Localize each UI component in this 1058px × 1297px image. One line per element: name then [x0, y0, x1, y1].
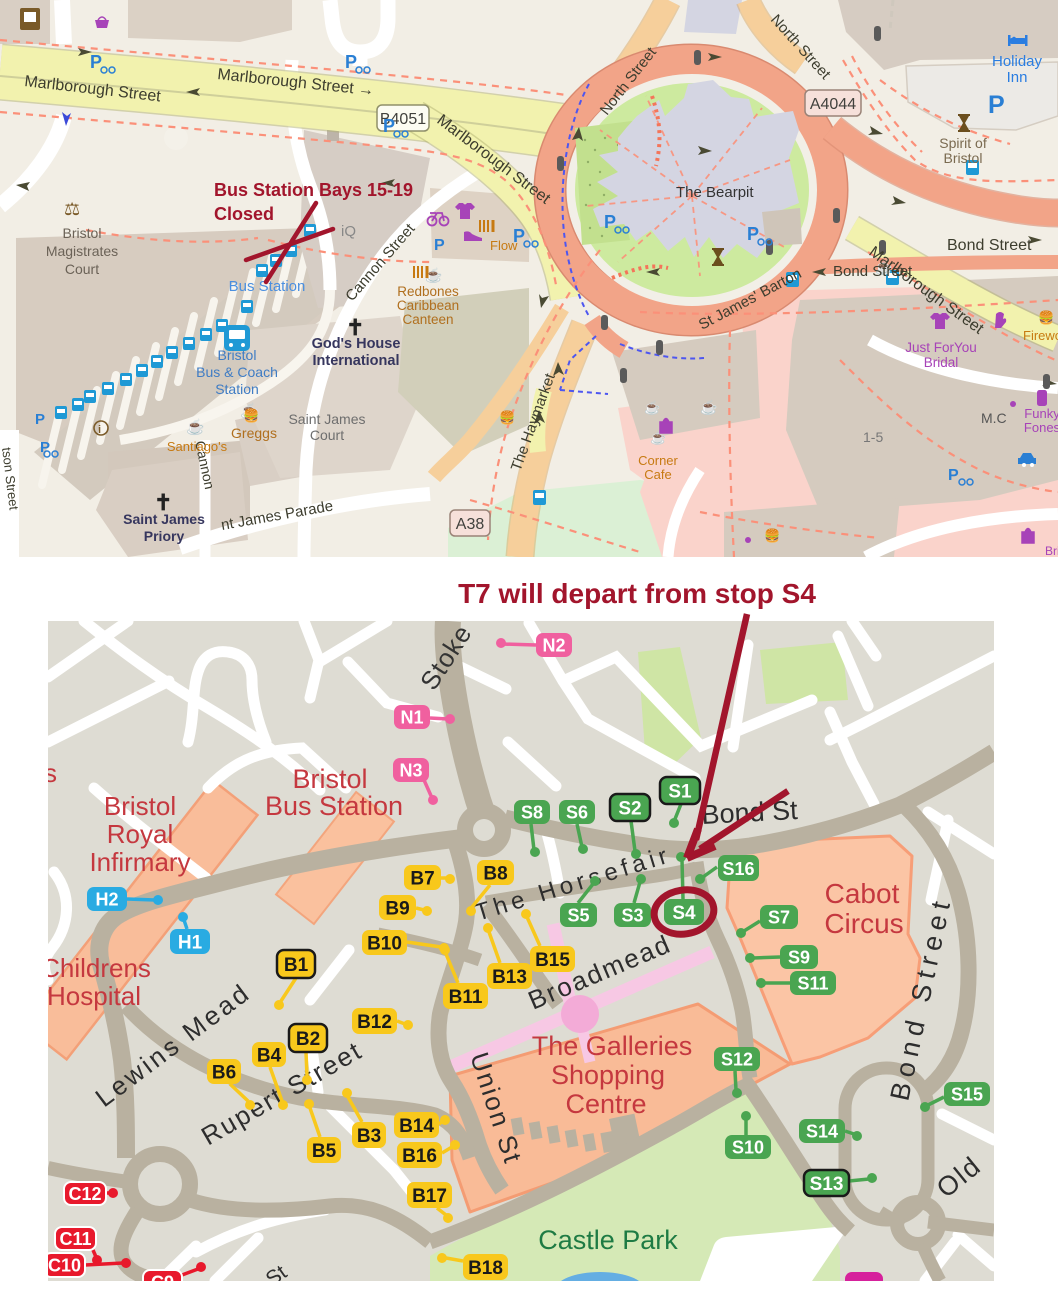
svg-text:God's House: God's House — [312, 336, 401, 352]
svg-text:B12: B12 — [357, 1012, 392, 1033]
svg-text:B15: B15 — [535, 950, 570, 971]
svg-text:☕: ☕ — [186, 417, 205, 436]
svg-text:Bond Street: Bond Street — [947, 237, 1032, 254]
svg-text:S2: S2 — [618, 798, 641, 819]
svg-text:S16: S16 — [722, 859, 754, 879]
svg-text:Royal: Royal — [107, 819, 173, 849]
svg-text:☕: ☕ — [644, 399, 660, 415]
svg-text:Bristol: Bristol — [63, 225, 102, 241]
svg-text:A38: A38 — [456, 516, 485, 533]
svg-text:🍔: 🍔 — [1038, 310, 1054, 325]
svg-text:B10: B10 — [367, 933, 402, 954]
svg-text:S10: S10 — [732, 1137, 764, 1157]
svg-text:Bus Station: Bus Station — [265, 791, 403, 821]
svg-text:Bond Street: Bond Street — [833, 263, 913, 280]
svg-text:B3: B3 — [357, 1126, 381, 1147]
svg-text:P: P — [948, 467, 959, 484]
svg-text:B2: B2 — [296, 1029, 320, 1050]
svg-text:Centre: Centre — [565, 1089, 646, 1119]
svg-text:T7 will depart from stop S4: T7 will depart from stop S4 — [458, 578, 816, 609]
svg-text:P: P — [35, 411, 45, 428]
svg-text:Holiday: Holiday — [992, 53, 1043, 70]
svg-text:S12: S12 — [721, 1049, 753, 1069]
svg-text:s: s — [44, 758, 57, 788]
svg-text:Court: Court — [65, 261, 99, 277]
svg-text:B18: B18 — [468, 1258, 503, 1279]
svg-text:Court: Court — [310, 427, 344, 443]
svg-text:N2: N2 — [542, 635, 565, 655]
svg-text:Just ForYou: Just ForYou — [905, 340, 977, 355]
svg-text:H2: H2 — [95, 889, 118, 909]
svg-text:Station: Station — [215, 381, 259, 397]
svg-text:Flow: Flow — [490, 238, 518, 253]
svg-text:Britis: Britis — [1045, 544, 1058, 558]
svg-text:S13: S13 — [810, 1174, 844, 1195]
svg-text:Bristol: Bristol — [944, 150, 983, 166]
svg-text:B14: B14 — [399, 1116, 434, 1137]
svg-text:Inn: Inn — [1007, 69, 1028, 86]
svg-text:S7: S7 — [768, 907, 790, 927]
svg-text:S4: S4 — [672, 903, 696, 924]
svg-text:P: P — [90, 52, 102, 72]
svg-text:S3: S3 — [621, 905, 643, 925]
svg-text:B7: B7 — [410, 868, 434, 889]
svg-text:N1: N1 — [400, 707, 423, 727]
svg-text:Hospital: Hospital — [47, 981, 141, 1011]
svg-text:M.C: M.C — [981, 410, 1007, 426]
svg-text:Greggs: Greggs — [231, 425, 277, 441]
svg-text:iQ: iQ — [341, 223, 356, 240]
svg-text:Bus & Coach: Bus & Coach — [196, 364, 278, 380]
svg-text:1-5: 1-5 — [863, 429, 883, 445]
svg-text:A4044: A4044 — [810, 96, 856, 113]
svg-text:Castle Park: Castle Park — [538, 1225, 678, 1255]
svg-text:🍔: 🍔 — [243, 408, 259, 423]
svg-text:Corner: Corner — [638, 453, 678, 468]
svg-text:Caribbean: Caribbean — [397, 298, 459, 313]
svg-text:Infirmary: Infirmary — [89, 847, 190, 877]
svg-text:Spirit of: Spirit of — [939, 135, 987, 151]
svg-text:Shopping: Shopping — [551, 1060, 665, 1090]
svg-text:🍔: 🍔 — [499, 410, 515, 425]
svg-text:B16: B16 — [402, 1146, 437, 1167]
svg-text:Santiago's: Santiago's — [167, 439, 228, 454]
svg-text:Redbones: Redbones — [397, 284, 459, 299]
svg-text:P: P — [383, 116, 395, 136]
svg-text:B8: B8 — [483, 863, 507, 884]
svg-text:Saint James: Saint James — [288, 411, 365, 427]
svg-text:Bridal: Bridal — [924, 355, 959, 370]
svg-text:B5: B5 — [312, 1141, 337, 1162]
svg-text:Saint James: Saint James — [123, 511, 205, 527]
svg-text:Circus: Circus — [824, 908, 903, 939]
svg-text:Closed: Closed — [214, 204, 274, 224]
svg-text:S11: S11 — [797, 973, 828, 993]
svg-text:☕: ☕ — [700, 398, 717, 416]
svg-text:Canteen: Canteen — [402, 312, 453, 327]
svg-text:S15: S15 — [951, 1084, 983, 1104]
svg-text:P: P — [747, 224, 759, 244]
svg-text:The Bearpit: The Bearpit — [676, 184, 754, 201]
svg-text:Bristol: Bristol — [292, 764, 367, 794]
svg-text:C11: C11 — [59, 1229, 91, 1249]
svg-text:🍔: 🍔 — [764, 528, 780, 543]
svg-text:B9: B9 — [385, 898, 409, 919]
svg-text:Priory: Priory — [144, 528, 185, 544]
svg-text:Childrens: Childrens — [41, 953, 151, 983]
svg-text:Funky: Funky — [1024, 406, 1058, 421]
svg-text:P: P — [345, 52, 357, 72]
svg-text:Firewo: Firewo — [1023, 328, 1058, 343]
svg-text:Cabot: Cabot — [825, 878, 900, 909]
svg-text:B6: B6 — [212, 1062, 236, 1083]
svg-text:Fones: Fones — [1024, 420, 1058, 435]
svg-text:The Galleries: The Galleries — [532, 1031, 693, 1061]
svg-text:P: P — [988, 91, 1005, 119]
svg-text:International: International — [312, 353, 399, 369]
svg-text:Magistrates: Magistrates — [46, 243, 118, 259]
svg-text:B4: B4 — [257, 1045, 282, 1066]
svg-text:S14: S14 — [806, 1121, 838, 1141]
svg-text:B17: B17 — [412, 1186, 447, 1207]
svg-text:S6: S6 — [566, 802, 588, 822]
svg-text:Bus Station Bays 15-19: Bus Station Bays 15-19 — [214, 180, 413, 200]
svg-text:S5: S5 — [567, 905, 589, 925]
svg-text:N3: N3 — [399, 760, 422, 780]
svg-text:P: P — [434, 237, 445, 254]
svg-text:P: P — [40, 439, 50, 456]
svg-text:B13: B13 — [492, 967, 527, 988]
svg-text:Bristol: Bristol — [104, 791, 176, 821]
svg-text:B1: B1 — [284, 955, 309, 976]
svg-text:S8: S8 — [521, 802, 543, 822]
svg-text:C12: C12 — [68, 1184, 101, 1204]
svg-text:C10: C10 — [48, 1255, 81, 1275]
svg-text:S9: S9 — [788, 947, 810, 967]
svg-text:⚖: ⚖ — [64, 199, 80, 219]
svg-text:H1: H1 — [178, 932, 203, 953]
svg-text:P: P — [604, 212, 616, 232]
svg-text:i: i — [98, 424, 101, 436]
svg-text:Cafe: Cafe — [644, 467, 671, 482]
svg-text:B11: B11 — [449, 987, 483, 1008]
svg-text:C9: C9 — [151, 1272, 174, 1292]
svg-text:Bristol: Bristol — [218, 347, 257, 363]
svg-text:S1: S1 — [668, 781, 692, 802]
